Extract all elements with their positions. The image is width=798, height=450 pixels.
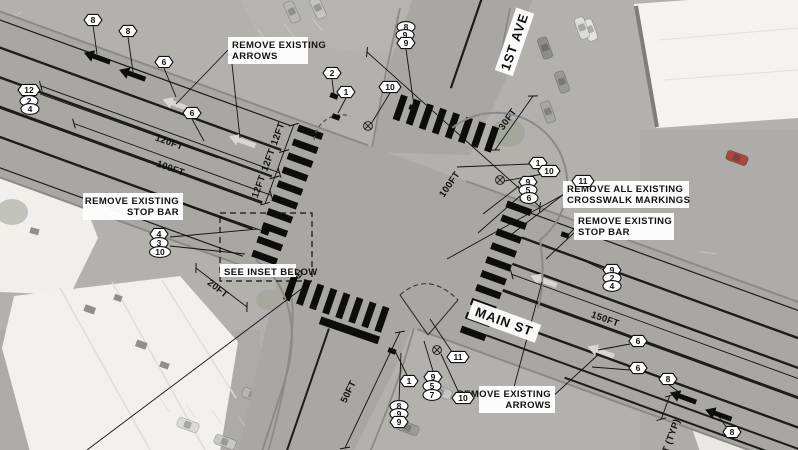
badge-number: 8 [666,374,671,384]
plan-drawing: 120FT100FT150FT12FT12FT12FT6FT (TYP) 100… [0,0,798,450]
hex-note-badge-6: 6 [629,362,647,373]
hex-note-badge-8: 8 [659,373,677,384]
hex-note-badge-8: 8 [119,25,137,36]
hex-note-badge-6: 6 [183,107,201,118]
hex-note-badge-6: 6 [629,335,647,346]
callout-text: STOP BAR [578,227,630,238]
hex-note-badge-11: 11 [572,175,594,186]
badge-number: 11 [454,352,463,362]
callout-text: REMOVE EXISTING [232,40,326,51]
building [634,0,798,128]
badge-number: 10 [458,393,468,403]
oval-item-badge-10: 10 [150,247,171,258]
badge-number: 9 [397,417,402,427]
hex-note-badge-9: 9 [397,37,415,48]
badge-number: 6 [162,57,167,67]
hex-note-badge-2: 2 [323,67,341,78]
badge-number: 12 [24,85,34,95]
badge-number: 7 [430,390,435,400]
hex-note-badge-1: 1 [337,86,355,97]
hex-note-badge-10: 10 [379,81,401,92]
traffic-plan-sheet: 120FT100FT150FT12FT12FT12FT6FT (TYP) 100… [0,0,798,450]
badge-number: 6 [636,336,641,346]
callout-text: ARROWS [505,400,551,411]
oval-item-badge-6: 6 [520,193,538,204]
badge-number: 4 [610,281,615,291]
badge-number: 4 [28,104,33,114]
oval-item-badge-4: 4 [21,104,39,115]
callout-text: REMOVE EXISTING [85,196,179,207]
badge-number: 6 [636,363,641,373]
badge-number: 2 [330,68,335,78]
badge-number: 1 [407,376,412,386]
hex-note-badge-12: 12 [18,84,40,95]
badge-number: 1 [536,158,541,168]
oval-item-badge-4: 4 [603,281,621,292]
badge-number: 10 [385,82,395,92]
callout-text: ARROWS [232,51,278,62]
badge-number: 9 [404,38,409,48]
hex-note-badge-10: 10 [452,392,474,403]
badge-number: 11 [579,176,588,186]
badge-number: 8 [126,26,131,36]
hex-note-badge-8: 8 [723,426,741,437]
callout-text: STOP BAR [127,207,179,218]
callout-box-see-inset-below: SEE INSET BELOW [220,264,318,278]
callout-text: SEE INSET BELOW [224,267,318,278]
callout-box-remove-stop-bar-left: REMOVE EXISTINGSTOP BAR [83,193,183,220]
hex-note-badge-8: 8 [84,14,102,25]
hex-note-badge-11: 11 [447,351,469,362]
badge-number: 6 [190,108,195,118]
callout-text: CROSSWALK MARKINGS [567,195,690,206]
oval-item-badge-7: 7 [423,390,441,401]
hex-note-badge-6: 6 [155,56,173,67]
badge-number: 1 [344,87,349,97]
hex-note-badge-1: 1 [400,375,418,386]
hex-note-badge-10: 10 [538,165,560,176]
badge-number: 8 [91,15,96,25]
badge-number: 10 [544,166,554,176]
badge-number: 6 [527,193,532,203]
callout-text: REMOVE EXISTING [578,216,672,227]
badge-number: 8 [730,427,735,437]
hex-note-badge-9: 9 [390,416,408,427]
badge-number: 10 [155,247,165,257]
callout-box-remove-stop-bar-right: REMOVE EXISTINGSTOP BAR [574,213,674,240]
